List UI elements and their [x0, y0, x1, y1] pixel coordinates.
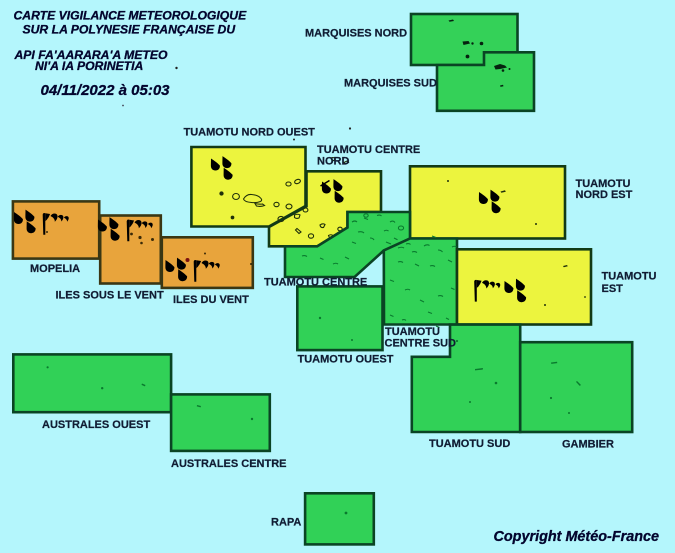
svg-text:RAPA: RAPA: [271, 517, 301, 529]
svg-text:SUR LA POLYNESIE FRANÇAISE DU: SUR LA POLYNESIE FRANÇAISE DU: [23, 23, 237, 37]
svg-text:Copyright Météo-France: Copyright Météo-France: [494, 529, 660, 545]
svg-text:CARTE VIGILANCE METEOROLOGIQUE: CARTE VIGILANCE METEOROLOGIQUE: [14, 9, 248, 23]
svg-text:TUAMOTU NORD OUEST: TUAMOTU NORD OUEST: [184, 127, 316, 139]
svg-text:TUAMOTU CENTRE: TUAMOTU CENTRE: [317, 144, 420, 156]
svg-text:CENTRE SUD: CENTRE SUD: [385, 338, 457, 350]
svg-text:AUSTRALES OUEST: AUSTRALES OUEST: [42, 419, 150, 431]
svg-text:NI'A IA PORINETIA: NI'A IA PORINETIA: [35, 59, 143, 73]
svg-text:TUAMOTU CENTRE: TUAMOTU CENTRE: [264, 277, 367, 289]
svg-text:ILES DU VENT: ILES DU VENT: [173, 294, 249, 306]
svg-text:NORD: NORD: [317, 156, 349, 168]
svg-text:MARQUISES NORD: MARQUISES NORD: [305, 28, 407, 40]
svg-text:TUAMOTU: TUAMOTU: [385, 326, 440, 338]
svg-text:TUAMOTU: TUAMOTU: [602, 271, 657, 283]
svg-text:GAMBIER: GAMBIER: [562, 439, 614, 451]
svg-text:EST: EST: [602, 283, 624, 295]
svg-text:AUSTRALES CENTRE: AUSTRALES CENTRE: [171, 458, 287, 470]
svg-text:04/11/2022 à 05:03: 04/11/2022 à 05:03: [41, 82, 171, 99]
svg-text:TUAMOTU OUEST: TUAMOTU OUEST: [298, 354, 394, 366]
svg-text:MARQUISES SUD: MARQUISES SUD: [344, 78, 437, 90]
svg-text:NORD EST: NORD EST: [576, 189, 633, 201]
svg-text:TUAMOTU SUD: TUAMOTU SUD: [429, 438, 510, 450]
svg-text:MOPELIA: MOPELIA: [30, 263, 80, 275]
svg-text:ILES SOUS LE VENT: ILES SOUS LE VENT: [56, 290, 164, 302]
